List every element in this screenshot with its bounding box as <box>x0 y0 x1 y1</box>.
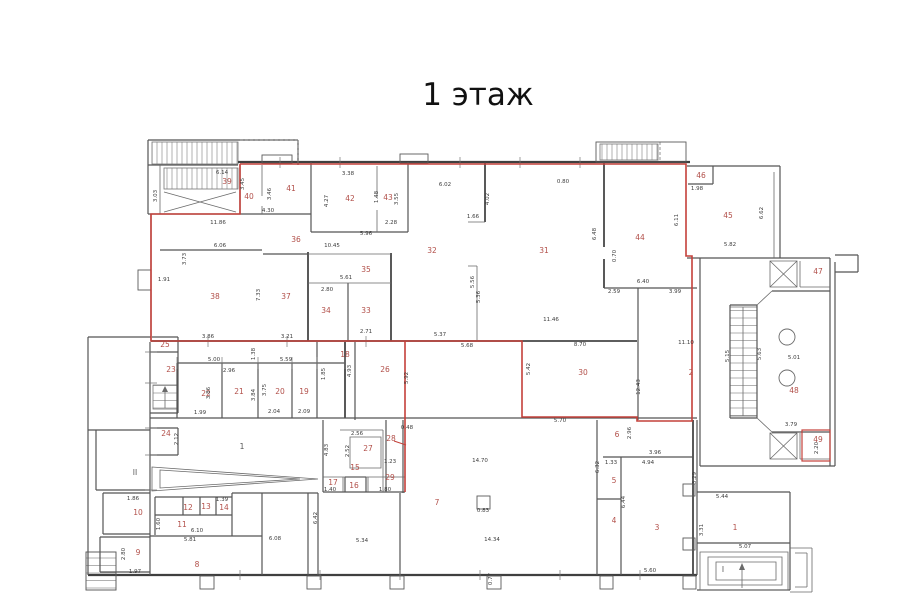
dim-5.81: 5.81 <box>184 537 196 543</box>
room-label-15: 15 <box>350 463 360 472</box>
dim-6.08: 6.08 <box>269 536 282 542</box>
porch-arrow <box>739 563 745 570</box>
space-label-II: II <box>133 468 137 477</box>
dim-2.20: 2.20 <box>814 441 820 454</box>
floor-plan-page: 1 этаж <box>0 0 900 604</box>
dim-3.84: 3.84 <box>251 388 257 401</box>
floor-plan-drawing: 1 этаж <box>0 0 900 604</box>
dim-1.66: 1.66 <box>467 214 480 220</box>
dim-1.86: 1.86 <box>127 496 140 502</box>
room-label-13: 13 <box>201 502 211 511</box>
dim-5.34: 5.34 <box>356 538 369 544</box>
dim-3.55: 3.55 <box>394 192 400 205</box>
dim-5.01: 5.01 <box>788 355 800 361</box>
dim-1.85: 1.85 <box>321 367 327 380</box>
dim-11.46: 11.46 <box>543 317 559 323</box>
room-label-38: 38 <box>210 292 220 301</box>
ramp-symbol <box>152 467 318 491</box>
dim-7.33: 7.33 <box>256 288 262 301</box>
space-label-I: I <box>722 565 724 574</box>
dim-6.48: 6.48 <box>592 227 598 240</box>
room-label-48: 48 <box>789 386 799 395</box>
stair-flight-right-annex <box>730 307 757 416</box>
dim-3.03: 3.03 <box>153 189 159 202</box>
room-label-26: 26 <box>380 365 390 374</box>
dim-6.11: 6.11 <box>674 214 680 226</box>
room-label-10: 10 <box>133 508 143 517</box>
room-label-28: 28 <box>386 434 396 443</box>
dim-3.38: 3.38 <box>342 171 355 177</box>
room-label-16: 16 <box>349 481 359 490</box>
stair-exterior-bottom-left <box>86 552 116 590</box>
dim-4.94: 4.94 <box>642 460 655 466</box>
dim-3.29: 3.29 <box>692 471 698 484</box>
dim-3.45: 3.45 <box>240 177 246 190</box>
room-label-37: 37 <box>281 292 291 301</box>
dim-11.86: 11.86 <box>210 220 226 226</box>
dim-5.36: 5.36 <box>476 290 482 303</box>
dim-4.83: 4.83 <box>324 443 330 456</box>
dim-6.44: 6.44 <box>621 495 627 508</box>
dim-5.82: 5.82 <box>724 242 736 248</box>
room-label-30: 30 <box>578 368 588 377</box>
dim-5.07: 5.07 <box>739 544 752 550</box>
dim-1.40: 1.40 <box>324 487 337 493</box>
dim-1.38: 1.38 <box>251 347 257 360</box>
dim-1.80: 1.80 <box>379 487 392 493</box>
dim-5.37: 5.37 <box>434 332 447 338</box>
dim-6.62: 6.62 <box>759 207 765 219</box>
dim-3.31: 3.31 <box>699 524 705 536</box>
room-label-27: 27 <box>363 444 373 453</box>
dim-0.80: 0.80 <box>557 179 570 185</box>
dim-1.60: 1.60 <box>156 517 162 530</box>
room-label-32: 32 <box>427 246 437 255</box>
room-label-1: 1 <box>733 523 738 532</box>
direction-arrows <box>162 386 745 570</box>
dim-2.71: 2.71 <box>360 329 372 335</box>
dim-3.86: 3.86 <box>202 334 215 340</box>
dim-3.86: 3.86 <box>206 386 212 399</box>
room-label-17: 17 <box>328 478 338 487</box>
dim-10.45: 10.45 <box>324 243 340 249</box>
room-label-3: 3 <box>655 523 660 532</box>
dim-2.56: 2.56 <box>351 431 364 437</box>
dim-1.99: 1.99 <box>194 410 207 416</box>
room-label-42: 42 <box>345 194 355 203</box>
dim-1.23: 1.23 <box>384 459 397 465</box>
dim-6.10: 6.10 <box>191 528 204 534</box>
dim-4.27: 4.27 <box>324 194 330 207</box>
dim-3.73: 3.73 <box>182 252 188 265</box>
dim-5.15: 5.15 <box>725 349 731 362</box>
dim-3.21: 3.21 <box>281 334 293 340</box>
dim-1.39: 1.39 <box>216 497 229 503</box>
room-label-2: 2 <box>689 368 694 377</box>
room-label-7: 7 <box>435 498 440 507</box>
room-label-24: 24 <box>161 429 171 438</box>
dim-2.96: 2.96 <box>627 426 633 439</box>
room-label-43: 43 <box>383 193 393 202</box>
dim-5.42: 5.42 <box>526 363 532 375</box>
dim-12.43: 12.43 <box>636 379 642 395</box>
room-label-19: 19 <box>299 387 309 396</box>
room-label-45: 45 <box>723 211 733 220</box>
room-label-33: 33 <box>361 306 371 315</box>
dim-6.32: 6.32 <box>595 461 601 473</box>
room-label-46: 46 <box>696 171 706 180</box>
room-label-21: 21 <box>234 387 244 396</box>
dim-5.96: 5.96 <box>360 231 373 237</box>
dim-2.28: 2.28 <box>385 220 398 226</box>
room-label-44: 44 <box>635 233 645 242</box>
dim-2.09: 2.09 <box>298 409 311 415</box>
dim-2.04: 2.04 <box>268 409 281 415</box>
dim-3.75: 3.75 <box>262 383 268 396</box>
dim-0.70: 0.70 <box>612 249 618 262</box>
room-label-40: 40 <box>244 192 254 201</box>
dim-6.06: 6.06 <box>214 243 227 249</box>
dim-3.96: 3.96 <box>649 450 662 456</box>
dim-2.80: 2.80 <box>121 547 127 560</box>
dim-5.60: 5.60 <box>644 568 657 574</box>
dim-0.48: 0.48 <box>401 425 414 431</box>
room-label-41: 41 <box>286 184 296 193</box>
room-label-20: 20 <box>275 387 285 396</box>
room-label-12: 12 <box>183 503 193 512</box>
dim-4.93: 4.93 <box>347 364 353 377</box>
plan-title: 1 этаж <box>422 77 534 113</box>
dim-5.00: 5.00 <box>208 357 221 363</box>
dim-1.91: 1.91 <box>158 277 170 283</box>
room-label-34: 34 <box>321 306 331 315</box>
room-label-36: 36 <box>291 235 301 244</box>
dim-3.46: 3.46 <box>267 187 273 200</box>
dim-5.61: 5.61 <box>340 275 352 281</box>
room-label-6: 6 <box>615 430 620 439</box>
dim-6.42: 6.42 <box>313 512 319 524</box>
room-label-35: 35 <box>361 265 371 274</box>
dim-14.70: 14.70 <box>472 458 488 464</box>
dim-1.97: 1.97 <box>129 569 142 575</box>
room-label-14: 14 <box>219 503 229 512</box>
dim-6.02: 6.02 <box>439 182 451 188</box>
dim-5.70: 5.70 <box>554 418 567 424</box>
dim-5.63: 5.63 <box>757 347 763 360</box>
dim-2.52: 2.52 <box>345 445 351 457</box>
stair-flight-top-left <box>152 142 238 164</box>
dim-5.59: 5.59 <box>280 357 293 363</box>
room-label-23: 23 <box>166 365 176 374</box>
dim-0.83: 0.83 <box>477 508 490 514</box>
dim-2.12: 2.12 <box>174 433 180 445</box>
dim-4.02: 4.02 <box>485 193 491 205</box>
room-label-4: 4 <box>612 516 617 525</box>
dim-14.34: 14.34 <box>484 537 500 543</box>
room-label-18: 18 <box>340 350 350 359</box>
dim-11.10: 11.10 <box>678 340 694 346</box>
room-label-25: 25 <box>160 340 170 349</box>
room-label-8: 8 <box>195 560 200 569</box>
dim-4.30: 4.30 <box>262 208 275 214</box>
room-label-47: 47 <box>813 267 823 276</box>
stair-flight-top-right <box>600 144 658 160</box>
room-label-9: 9 <box>136 548 141 557</box>
dim-1.33: 1.33 <box>605 460 618 466</box>
dim-2.80: 2.80 <box>321 287 334 293</box>
dim-3.99: 3.99 <box>669 289 682 295</box>
dim-6.40: 6.40 <box>637 279 650 285</box>
room-label-39: 39 <box>222 177 232 186</box>
dim-5.68: 5.68 <box>461 343 474 349</box>
dim-5.56: 5.56 <box>470 275 476 288</box>
dim-0.77: 0.77 <box>488 572 494 585</box>
dim-2.59: 2.59 <box>608 289 621 295</box>
dim-1.98: 1.98 <box>691 186 704 192</box>
room-label-31: 31 <box>539 246 549 255</box>
room-label-29: 29 <box>385 473 395 482</box>
dim-8.70: 8.70 <box>574 342 587 348</box>
room-label-5: 5 <box>612 476 617 485</box>
dim-6.14: 6.14 <box>216 170 229 176</box>
dim-2.96: 2.96 <box>223 368 236 374</box>
room-label-11: 11 <box>177 520 187 529</box>
dim-1.48: 1.48 <box>374 190 380 203</box>
dimension-labels: 6.144.3011.863.382.285.966.021.660.801.9… <box>121 170 820 585</box>
space-label-1: 1 <box>240 442 245 451</box>
dim-5.44: 5.44 <box>716 494 729 500</box>
dim-3.79: 3.79 <box>785 422 798 428</box>
dim-5.92: 5.92 <box>404 372 410 384</box>
